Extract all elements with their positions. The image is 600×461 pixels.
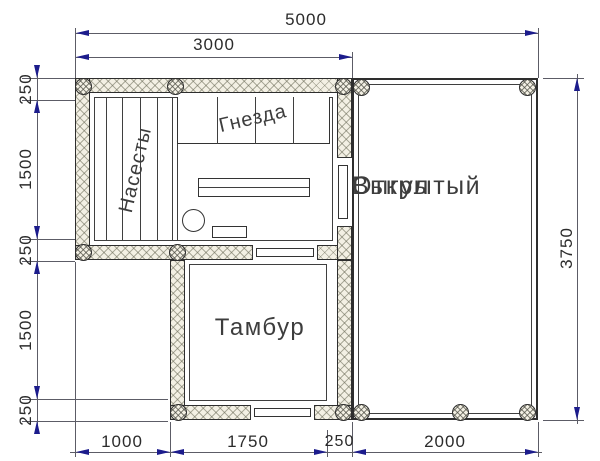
dim-arrow <box>171 449 184 455</box>
dim-arrow <box>525 30 538 36</box>
post <box>519 79 536 96</box>
dim-arrow <box>157 449 170 455</box>
extension-line <box>75 28 76 78</box>
perch-area-divider <box>172 97 173 241</box>
extension-line <box>538 422 539 457</box>
chicken-coop-floor-plan: Открытый Выгул Тамбур Гнезда Насесты 500… <box>0 0 600 461</box>
dim-arrow <box>353 449 366 455</box>
post <box>335 404 352 421</box>
perch-line <box>157 97 158 241</box>
coop-wall-left <box>75 78 90 260</box>
dim-label-bottom-1: 1000 <box>101 432 143 452</box>
coop-run-door-leaf <box>338 165 348 219</box>
dim-arrow <box>574 407 580 420</box>
dim-line-3750 <box>577 74 578 424</box>
dim-arrow <box>76 54 89 60</box>
vestibule-wall-left <box>170 260 185 420</box>
dim-label-left-5: 250 <box>16 394 36 425</box>
post <box>167 78 184 95</box>
dim-label-overall-width: 5000 <box>285 10 327 30</box>
post <box>353 79 370 96</box>
post <box>169 244 186 261</box>
dim-arrow <box>339 54 352 60</box>
dim-label-left-3: 250 <box>16 234 36 265</box>
dim-label-coop-width: 3000 <box>193 35 235 55</box>
post <box>452 404 469 421</box>
dim-label-left-2: 1500 <box>16 148 36 190</box>
post <box>75 244 92 261</box>
dim-label-bottom-2: 1750 <box>227 432 269 452</box>
feed-tray <box>212 226 247 238</box>
post <box>75 78 92 95</box>
vestibule-wall-right <box>337 260 352 420</box>
dim-label-left-4: 1500 <box>16 309 36 351</box>
coop-wall-top <box>75 78 352 93</box>
dim-label-bottom-4: 2000 <box>424 432 466 452</box>
post <box>335 78 352 95</box>
extension-line <box>75 262 76 457</box>
post <box>519 404 536 421</box>
dim-arrow <box>76 449 89 455</box>
dim-line-3000 <box>75 57 352 58</box>
dim-line-left-chain <box>37 70 38 430</box>
open-run-fence-inner <box>358 84 532 414</box>
dim-arrow <box>525 449 538 455</box>
open-run-label-line2: Выгул <box>352 173 430 199</box>
dim-label-overall-depth: 3750 <box>557 227 577 269</box>
dim-line-bottom-chain <box>70 452 542 453</box>
coop-vestibule-door-leaf <box>256 248 314 257</box>
nest-divider <box>293 97 294 144</box>
dim-arrow <box>76 30 89 36</box>
dim-arrow <box>574 78 580 91</box>
perch-line <box>122 97 123 241</box>
extension-tick <box>543 420 584 421</box>
vestibule-entry-door-leaf <box>254 408 311 417</box>
perch-line <box>106 97 107 241</box>
vestibule-label: Тамбур <box>185 314 335 342</box>
post <box>353 404 370 421</box>
feeder-midline <box>199 187 309 188</box>
extension-line <box>538 28 539 78</box>
extension-tick <box>22 421 168 422</box>
extension-line <box>352 52 353 78</box>
post <box>170 404 187 421</box>
dim-line-5000 <box>75 33 538 34</box>
drinker <box>182 209 205 232</box>
extension-tick <box>22 399 168 400</box>
dim-label-bottom-3: 250 <box>325 433 355 451</box>
dim-label-left-1: 250 <box>16 73 36 104</box>
